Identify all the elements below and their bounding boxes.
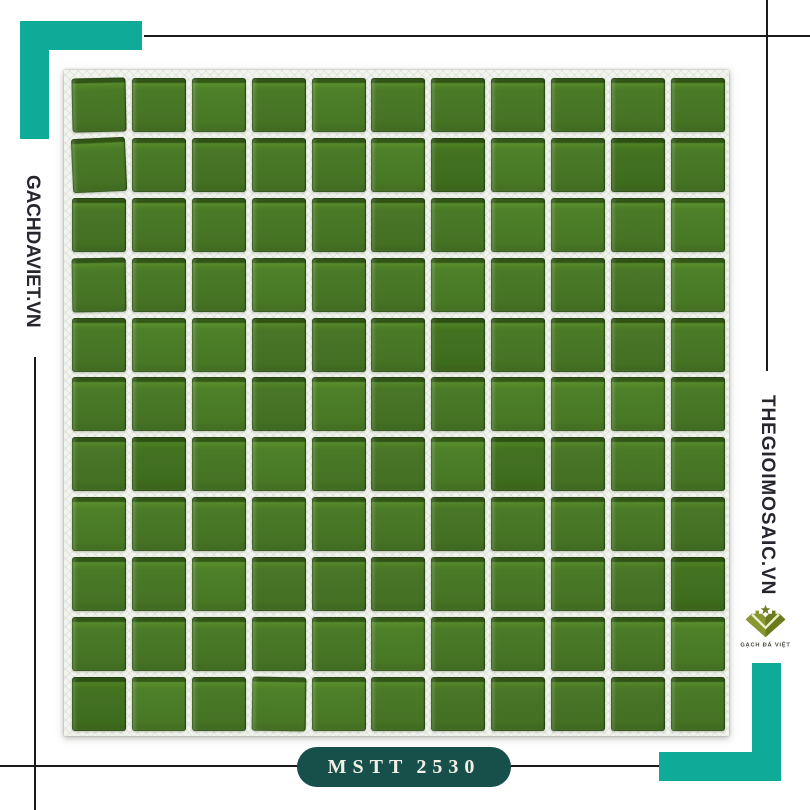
- svg-text:GẠCH ĐÁ VIỆT: GẠCH ĐÁ VIỆT: [740, 641, 790, 649]
